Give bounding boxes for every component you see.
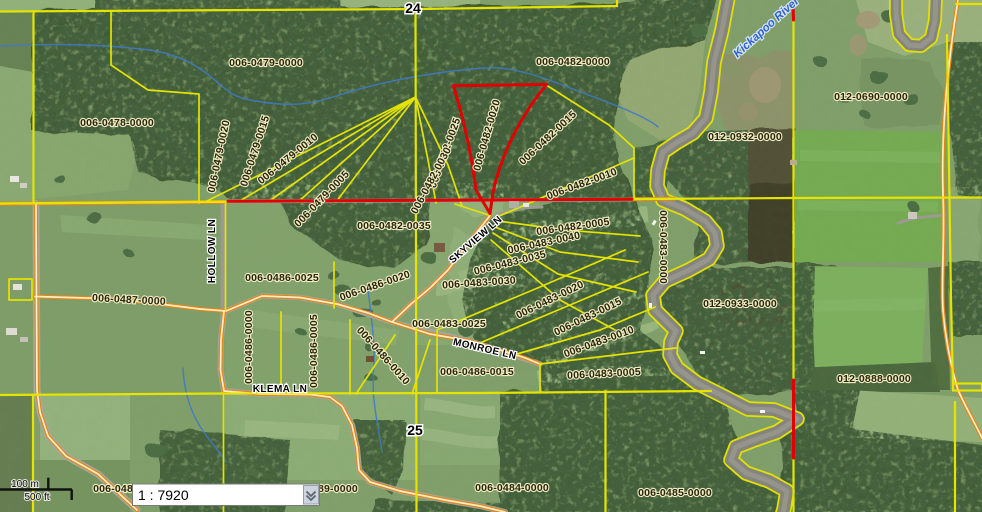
- svg-text:500 ft: 500 ft: [24, 492, 49, 503]
- svg-text:HOLLOW LN: HOLLOW LN: [207, 219, 218, 283]
- svg-text:006-0483-0000: 006-0483-0000: [657, 210, 669, 284]
- svg-text:012-0932-0000: 012-0932-0000: [708, 131, 782, 143]
- svg-text:006-0478-0000: 006-0478-0000: [80, 117, 154, 129]
- svg-text:012-0888-0000: 012-0888-0000: [837, 373, 911, 385]
- svg-text:006-0486-0025: 006-0486-0025: [245, 272, 319, 284]
- svg-text:006-0486-0015: 006-0486-0015: [440, 366, 514, 378]
- svg-text:006-0485-0000: 006-0485-0000: [638, 487, 712, 499]
- svg-text:012-0933-0000: 012-0933-0000: [703, 298, 777, 310]
- svg-text:006-0486-0005: 006-0486-0005: [308, 314, 320, 388]
- svg-text:25: 25: [407, 422, 423, 438]
- svg-text:006-0482-0035: 006-0482-0035: [357, 220, 431, 232]
- svg-text:1 : 7920: 1 : 7920: [138, 487, 189, 503]
- svg-text:006-0486-0000: 006-0486-0000: [243, 310, 255, 384]
- svg-text:006-0483-0025: 006-0483-0025: [412, 318, 486, 330]
- svg-text:100 m: 100 m: [11, 479, 39, 490]
- svg-text:006-0479-0000: 006-0479-0000: [229, 57, 303, 69]
- svg-text:006-0482-0000: 006-0482-0000: [536, 56, 610, 68]
- svg-text:012-0690-0000: 012-0690-0000: [834, 91, 908, 103]
- svg-text:KLEMA LN: KLEMA LN: [253, 384, 308, 395]
- svg-text:24: 24: [405, 0, 421, 16]
- svg-text:006-0484-0000: 006-0484-0000: [475, 482, 549, 494]
